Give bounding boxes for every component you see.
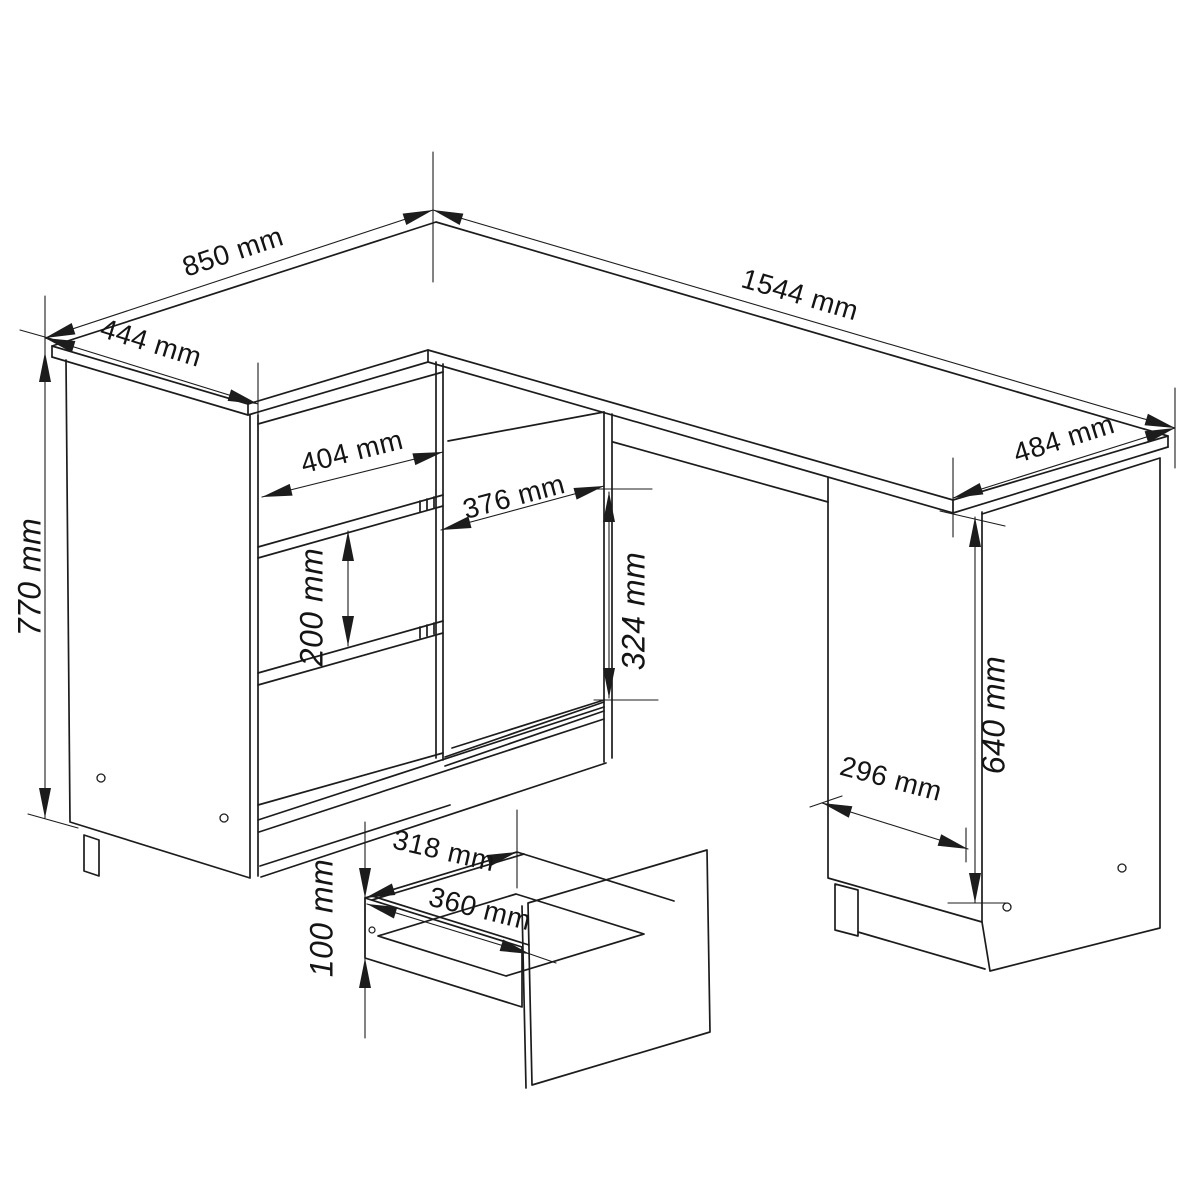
arrowhead bbox=[39, 788, 51, 818]
divider-panel bbox=[604, 412, 612, 762]
drawer-front-panel bbox=[528, 850, 710, 1085]
arrowhead bbox=[359, 958, 371, 988]
technical-drawing bbox=[0, 0, 1200, 1200]
arrowhead bbox=[342, 616, 354, 646]
right-foot bbox=[835, 884, 858, 936]
arrowhead bbox=[359, 868, 371, 898]
arrowhead bbox=[969, 517, 981, 547]
arrowhead bbox=[262, 484, 293, 497]
screw-hole bbox=[369, 927, 375, 933]
arrowhead bbox=[365, 884, 395, 899]
arrowhead bbox=[1145, 414, 1176, 428]
arrowhead bbox=[342, 531, 354, 561]
dim-label-drawer-front-height: 200 mm bbox=[294, 548, 331, 667]
dim-label-desk-total-height: 770 mm bbox=[12, 518, 49, 637]
cam-hole bbox=[97, 774, 105, 782]
back-rail bbox=[613, 442, 828, 502]
arrowhead bbox=[953, 483, 983, 498]
arrowhead bbox=[969, 873, 981, 903]
arrowhead bbox=[822, 803, 852, 818]
arrowhead bbox=[938, 834, 968, 849]
dim-label-side-cabinet-height: 640 mm bbox=[976, 656, 1013, 775]
arrowhead bbox=[574, 486, 605, 500]
drawer-detail bbox=[365, 850, 710, 1088]
arrowhead bbox=[412, 452, 443, 465]
arrowhead bbox=[45, 323, 75, 338]
left-foot bbox=[84, 835, 99, 876]
arrowhead bbox=[403, 210, 433, 225]
arrowhead bbox=[500, 940, 530, 955]
arrowhead bbox=[228, 389, 258, 404]
cam-hole bbox=[1003, 903, 1011, 911]
dimension-arrowheads bbox=[39, 210, 1175, 988]
drawer-gap-endcaps bbox=[420, 497, 434, 638]
arrowhead bbox=[39, 352, 51, 382]
cam-hole bbox=[1118, 864, 1126, 872]
dim-label-drawer-box-side-height: 100 mm bbox=[304, 859, 341, 978]
extension-lines bbox=[20, 152, 1175, 1038]
dim-label-shelf-opening-height: 324 mm bbox=[616, 552, 653, 671]
drawing-canvas: 850 mm444 mm1544 mm484 mm770 mm404 mm376… bbox=[0, 0, 1200, 1200]
dimension-lines bbox=[45, 210, 1175, 958]
left-cabinet bbox=[66, 360, 606, 878]
cam-hole bbox=[220, 814, 228, 822]
